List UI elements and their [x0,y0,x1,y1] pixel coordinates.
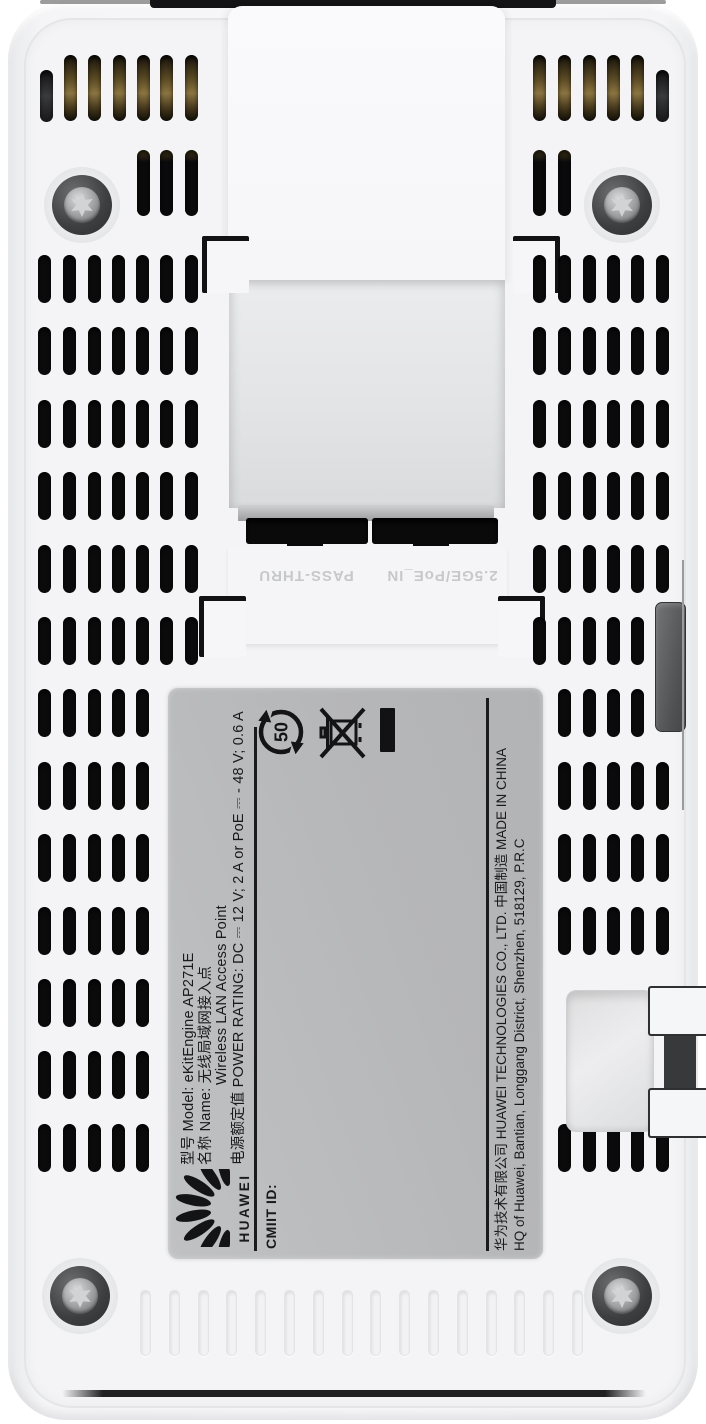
vent-slot [88,400,101,448]
vent-slot [136,1124,149,1172]
vent-slot [136,472,149,520]
vent-slot [38,617,51,665]
vent-slot [185,255,198,303]
name-line: 名称 Name: 无线局域网接入点 [198,711,215,1165]
vent-slot [88,55,101,121]
vent-slot [185,55,198,121]
vent-slot [112,617,125,665]
label-address-block: 华为技术有限公司 HUAWEI TECHNOLOGIES CO., LTD. 中… [493,748,528,1251]
vent-slot [137,55,150,121]
vent-slot [558,255,571,303]
vent-slot [558,762,571,810]
vent-slot [88,545,101,593]
cable-clip-arm-bottom [648,1088,706,1138]
vent-slot [558,55,571,121]
vent-slot [656,70,669,122]
vent-slot [583,907,596,955]
vent-slot [631,762,644,810]
vent-slot [631,55,644,121]
vent-slot [583,834,596,882]
vent-slot [38,762,51,810]
vent-slot [38,400,51,448]
vent-slot [631,834,644,882]
product-label: HUAWEI 型号 Model: eKitEngine AP271E 名称 Na… [168,688,543,1259]
vent-slot [607,907,620,955]
vent-slot [136,834,149,882]
vent-slot [656,545,669,593]
vent-slot [63,327,76,375]
vent-slot [631,400,644,448]
vent-slot [88,979,101,1027]
vent-slot [38,1051,51,1099]
vent-slot [63,762,76,810]
vent-slot [38,545,51,593]
vent-slot [112,907,125,955]
vent-slot [38,1124,51,1172]
vent-slot [656,255,669,303]
vent-slot [533,55,546,121]
vent-slot [558,689,571,737]
vent-slot [607,834,620,882]
vent-slot [38,834,51,882]
vent-slot [583,255,596,303]
power-rating-line: 电源额定值 POWER RATING: DC ⎓ 12 V; 2 A or Po… [231,711,248,1165]
vent-slot [185,327,198,375]
vent-slot [112,1124,125,1172]
vent-slot [63,1124,76,1172]
vent-slot [63,472,76,520]
vent-slot [63,545,76,593]
weee-crossed-bin-icon [316,705,373,761]
vent-slot [185,150,198,216]
vent-slot [137,150,150,216]
company-line: 华为技术有限公司 HUAWEI TECHNOLOGIES CO., LTD. 中… [493,748,511,1251]
vent-slot [607,327,620,375]
vent-slot [160,472,173,520]
grip-ridge [457,1290,468,1356]
vent-slot [558,617,571,665]
vent-slot [38,472,51,520]
address-line: HQ of Huawei, Bantian, Longgang District… [511,748,529,1251]
vent-slot [136,979,149,1027]
bottom-seam [62,1390,646,1397]
grip-ridge [543,1290,554,1356]
vent-slot [533,150,546,216]
vent-slot [38,979,51,1027]
rj45-port-opening-right [372,518,498,544]
vent-slot [533,545,546,593]
vent-slot [607,255,620,303]
vent-slot [38,689,51,737]
vent-slot [583,689,596,737]
vent-slot [533,327,546,375]
grip-ridge [514,1290,525,1356]
vent-slot [136,545,149,593]
vent-slot [583,617,596,665]
mount-tab-lower-left [199,596,246,657]
vent-slot [63,400,76,448]
cable-clip-arm-top [648,986,706,1036]
grip-ridge [198,1290,209,1356]
grip-ridge [226,1290,237,1356]
vent-slot [656,400,669,448]
huawei-wordmark: HUAWEI [237,1167,252,1249]
vent-slot [558,150,571,216]
vent-slot [112,834,125,882]
vent-slot [112,689,125,737]
vent-slot [136,689,149,737]
vent-slot [656,327,669,375]
vent-slot [583,400,596,448]
grip-ridge [572,1290,583,1356]
vent-slot [558,472,571,520]
vent-slot [607,545,620,593]
vent-slot [185,472,198,520]
grip-ridge [342,1290,353,1356]
vent-slot [113,55,126,121]
vent-slot [607,617,620,665]
vent-slot [160,545,173,593]
vent-slot [607,689,620,737]
vent-slot [583,55,596,121]
huawei-brand-block: HUAWEI [174,1167,252,1249]
label-rule-top [254,727,257,1251]
vent-slot [583,327,596,375]
grip-ridge [428,1290,439,1356]
vent-slot [38,255,51,303]
vent-slot [583,762,596,810]
torx-screw-bottom-left [42,1258,118,1334]
vent-slot [607,55,620,121]
vent-slot [112,1051,125,1099]
vent-slot [136,400,149,448]
vent-slot [88,689,101,737]
vent-slot [112,979,125,1027]
vent-slot [533,617,546,665]
vent-slot [136,762,149,810]
cable-clip-recess [566,990,654,1132]
torx-screw-top-left [44,167,120,243]
vent-slot [185,400,198,448]
bracket-recess [229,280,505,508]
vent-slot [656,472,669,520]
vent-slot [136,327,149,375]
vent-slot [63,617,76,665]
vent-slot [88,327,101,375]
vent-slot [160,400,173,448]
vent-slot [38,327,51,375]
vent-slot [88,907,101,955]
vent-slot [631,327,644,375]
torx-screw-bottom-right [584,1258,660,1334]
vent-slot [64,55,77,121]
vent-slot [136,255,149,303]
vent-slot [112,762,125,810]
vent-slot [583,472,596,520]
vent-slot [88,617,101,665]
grip-ridge [370,1290,381,1356]
vent-slot [112,327,125,375]
solid-bar-mark [380,708,395,752]
vent-slot [656,762,669,810]
grip-ridge [255,1290,266,1356]
vent-slot [136,617,149,665]
label-spec-lines: 型号 Model: eKitEngine AP271E 名称 Name: 无线局… [181,711,247,1165]
vent-slot [558,400,571,448]
vent-slot [88,1051,101,1099]
vent-slot [136,907,149,955]
cable-clip-opening [664,1026,696,1096]
vent-slot [63,834,76,882]
vent-slot [631,907,644,955]
vent-slot [656,907,669,955]
model-line: 型号 Model: eKitEngine AP271E [181,711,198,1165]
vent-slot [533,472,546,520]
device-photo: PASS-THRU 2.5GE/PoE_IN [0,0,706,1424]
vent-slot [533,255,546,303]
grip-ridge [399,1290,410,1356]
vent-slot [558,834,571,882]
vent-slot [63,255,76,303]
vent-slot [607,400,620,448]
grip-ridge [313,1290,324,1356]
vent-slot [88,762,101,810]
vent-slot [631,472,644,520]
vent-slot [88,255,101,303]
grip-ridge [140,1290,151,1356]
label-rule-bottom [486,698,489,1251]
vent-slot [583,545,596,593]
vent-slot [558,907,571,955]
vent-slot [185,617,198,665]
torx-screw-top-right [584,167,660,243]
vent-slot [63,689,76,737]
mount-tab-upper-left [202,236,249,293]
vent-slot [112,255,125,303]
vent-slot [160,55,173,121]
vent-slot [63,907,76,955]
vent-slot [88,472,101,520]
pass-thru-port-label: PASS-THRU [250,558,362,584]
vent-slot [160,617,173,665]
vent-slot [160,327,173,375]
vent-slot [160,150,173,216]
vent-slot [63,1051,76,1099]
vent-slot [38,907,51,955]
vent-slot [558,545,571,593]
vent-slot [607,762,620,810]
vent-slot [40,70,53,122]
grip-ridge [284,1290,295,1356]
vent-slot [88,1124,101,1172]
vent-slot [88,834,101,882]
poe-in-port-label: 2.5GE/PoE_IN [366,558,518,584]
product-label-content: HUAWEI 型号 Model: eKitEngine AP271E 名称 Na… [168,688,543,1259]
huawei-flower-logo [174,1169,230,1247]
recycle-50-icon: 50 [256,707,311,757]
grip-ridge [486,1290,497,1356]
vent-slot [112,472,125,520]
vent-slot [631,689,644,737]
vent-slot [558,1124,571,1172]
vent-slot [631,617,644,665]
vent-slot [112,545,125,593]
vent-slot [112,400,125,448]
vent-slot [631,255,644,303]
vent-slot [160,255,173,303]
rj45-port-opening-left [246,518,368,544]
vent-slot [185,545,198,593]
vent-slot [607,472,620,520]
vent-slot [558,327,571,375]
cmiit-id-line: CMIIT ID: [263,1184,279,1249]
vent-slot [63,979,76,1027]
right-panel-seam [682,560,684,810]
svg-text:50: 50 [272,722,292,742]
name-line-en: Wireless LAN Access Point [214,711,231,1165]
vent-slot [533,400,546,448]
mounting-bracket [228,6,505,282]
vent-slot [656,834,669,882]
grip-ridge [169,1290,180,1356]
vent-slot [631,545,644,593]
vent-slot [136,1051,149,1099]
